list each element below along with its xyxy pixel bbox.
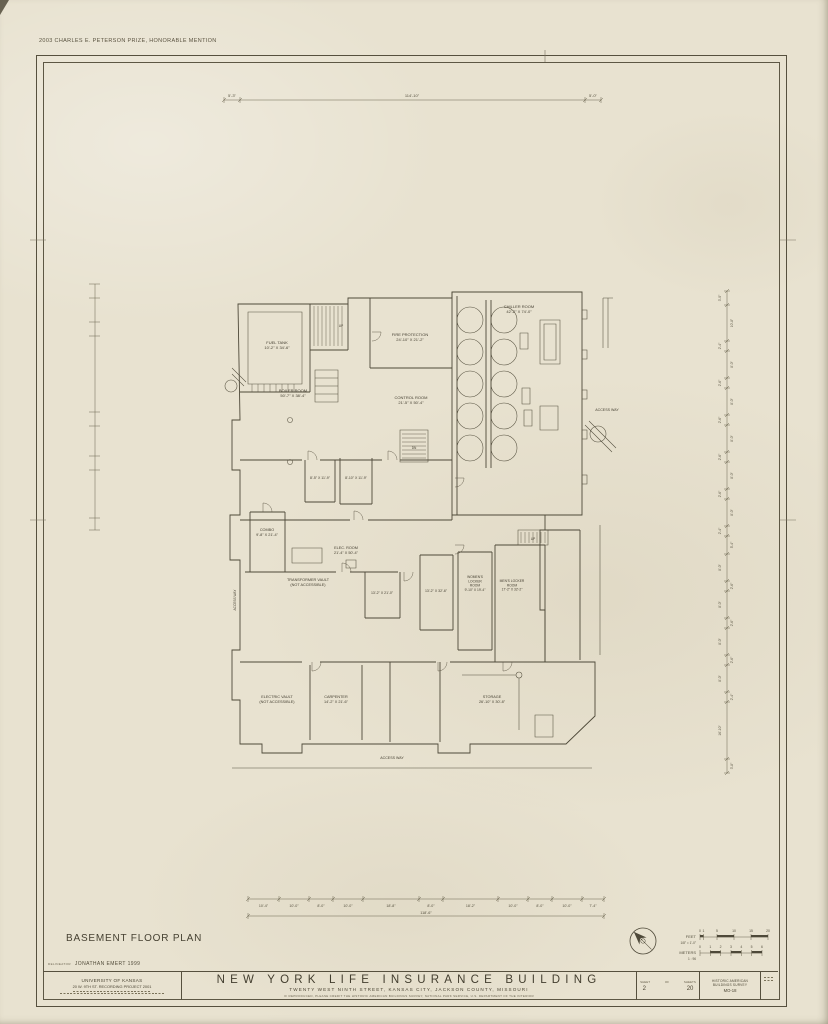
- equipment-outlines: [248, 312, 560, 737]
- room-label: STORAGE: [483, 695, 502, 699]
- dimension-label: 10'-0": [343, 904, 353, 908]
- room-label: ACCESS WAY: [233, 589, 237, 611]
- dimension-label: 18'-8": [386, 904, 396, 908]
- room-label: 17'-2" X 32'-2": [502, 588, 524, 592]
- scale-meters-label: METERS: [679, 950, 696, 955]
- room-label: 42'-2" X 74'-0": [506, 309, 532, 314]
- dimension-label: 7'-4": [589, 904, 597, 908]
- building-address: TWENTY WEST NINTH STREET, KANSAS CITY, J…: [289, 987, 528, 992]
- dimension-label: 114'-10": [405, 93, 420, 98]
- survey-number: MO-18: [724, 988, 737, 993]
- scale-meters-note: 1 : 96: [688, 957, 696, 961]
- stamp-cell: [761, 972, 777, 1000]
- room-label: 13'-2" X 32'-6": [425, 589, 448, 593]
- dimension-label: 8'-0": [730, 471, 734, 478]
- sheet-total: 20: [687, 986, 694, 992]
- dimension-label: 8'-0": [718, 600, 722, 607]
- title-block: UNIVERSITY OF KANSAS 20 W. 9TH ST. RECOR…: [43, 971, 778, 1000]
- dimension-label: 16'-10": [718, 725, 722, 736]
- dimension-label: 3'-8": [730, 762, 734, 769]
- chiller-tank: [491, 307, 517, 333]
- dimension-label: 8'-0": [730, 508, 734, 515]
- scale-tick-label: 5: [751, 945, 753, 949]
- pilaster: [582, 350, 587, 359]
- agency-name: UNIVERSITY OF KANSAS: [81, 978, 142, 983]
- stamp-fine-print: [764, 980, 774, 981]
- survey-line2: BUILDINGS SURVEY: [713, 983, 747, 987]
- dimension-label: 2'-6": [730, 582, 734, 589]
- pilaster: [582, 390, 587, 399]
- scale-feet-note: 1/8" = 1'-0": [680, 941, 696, 945]
- room-label: 13'-2" X 21'-0": [371, 591, 394, 595]
- chiller-tank: [457, 339, 483, 365]
- dimension-label: 118'-6": [420, 911, 432, 915]
- pilaster: [582, 310, 587, 319]
- dimension-label: 10'-4": [259, 904, 269, 908]
- room-label: DN: [412, 446, 417, 450]
- room-label: 21'-5" X 50'-4": [398, 400, 424, 405]
- delineator-name: JONATHAN EMERT 1999: [75, 961, 140, 967]
- dimension-line: [246, 896, 606, 902]
- dimension-label: 2'-4": [718, 342, 722, 349]
- dimension-label: 8'-0": [427, 904, 435, 908]
- room-label: 9'-8" X 21'-4": [256, 533, 279, 537]
- delineator-row: DELINEATORJONATHAN EMERT 1999: [48, 961, 140, 967]
- room-label: COMBO: [260, 528, 274, 532]
- dimension-label: 10'-8": [730, 318, 734, 327]
- room-label: 26'-10" X 30'-8": [479, 700, 506, 704]
- of-label: OF: [665, 980, 669, 984]
- scale-bar-segment: [751, 935, 768, 937]
- dimension-label: 10'-0": [508, 904, 518, 908]
- interior-walls: [240, 292, 582, 742]
- agency-cell: UNIVERSITY OF KANSAS 20 W. 9TH ST. RECOR…: [43, 972, 182, 1000]
- dimension-label: 10'-0": [562, 904, 572, 908]
- room-label: (NOT ACCESSIBLE): [290, 583, 326, 587]
- door-swings: [263, 332, 512, 671]
- dimension-label: 8'-0": [718, 674, 722, 681]
- left-dimension-ticks: [89, 284, 100, 530]
- building-name: NEW YORK LIFE INSURANCE BUILDING: [217, 974, 602, 986]
- dimension-label: 8'-0": [730, 360, 734, 367]
- dimension-label: 2'-6": [730, 656, 734, 663]
- chiller-tank: [491, 339, 517, 365]
- room-label: (NOT ACCESSIBLE): [259, 700, 295, 704]
- room-label: 21'-4" X 50'-4": [334, 551, 359, 555]
- dimension-label: 5'-0": [589, 93, 598, 98]
- room-label: 9'-10" X 19'-4": [465, 588, 487, 592]
- building-title-cell: NEW YORK LIFE INSURANCE BUILDING TWENTY …: [182, 972, 637, 1000]
- scale-tick-label: 4: [740, 945, 742, 949]
- dimension-label: 8'-0": [718, 637, 722, 644]
- chiller-tank: [457, 403, 483, 429]
- dimension-label: 5'-3": [228, 93, 237, 98]
- room-label: 14'-2" X 21'-6": [324, 700, 349, 704]
- agency-project: 20 W. 9TH ST. RECORDING PROJECT 2001: [73, 984, 152, 989]
- scale-tick-label: 20: [766, 929, 770, 933]
- room-label: TRANSFORMER VAULT: [287, 578, 330, 582]
- dimension-label: 2'-6": [718, 490, 722, 497]
- scale-tick-label: 1: [703, 929, 705, 933]
- sheet-label: SHEET: [640, 980, 650, 984]
- scale-tick-label: 0: [699, 929, 701, 933]
- chiller-tank: [457, 307, 483, 333]
- scale-tick-label: 2: [720, 945, 722, 949]
- room-label: CARPENTER: [324, 695, 348, 699]
- drawing-title: BASEMENT FLOOR PLAN: [66, 933, 202, 944]
- scale-tick-label: 0: [699, 945, 701, 949]
- pipe-junction: [516, 672, 522, 678]
- dimension-label: 8'-0": [718, 563, 722, 570]
- scale-tick-label: 1: [709, 945, 711, 949]
- room-label: ELEC. ROOM: [334, 546, 358, 550]
- dimension-label: 3'-0": [718, 294, 722, 301]
- agency-fine-print: [60, 993, 164, 994]
- dimension-label: 2'-6": [718, 453, 722, 460]
- chiller-tank: [491, 371, 517, 397]
- room-label: 8'-5" X 11'-9": [310, 476, 331, 480]
- dimension-label: 8'-0": [730, 434, 734, 441]
- room-label: 50'-7" X 38'-4": [280, 393, 306, 398]
- floor-plan-drawing: FUEL TANK10'-2" X 34'-6"FIRE PROTECTION2…: [0, 0, 828, 1024]
- delineator-label: DELINEATOR: [48, 962, 71, 966]
- survey-cell: HISTORIC AMERICAN BUILDINGS SURVEY MO-18: [700, 972, 761, 1000]
- scale-feet-label: FEET: [686, 934, 697, 939]
- room-label: ACCESS WAY: [380, 756, 404, 760]
- room-label: UP: [339, 324, 343, 328]
- dimension-label: 2'-4": [730, 693, 734, 700]
- chiller-tank: [491, 435, 517, 461]
- scale-tick-label: 5: [716, 929, 718, 933]
- manhole: [590, 426, 606, 442]
- dimension-label: 2'-6": [718, 416, 722, 423]
- room-label: ACCESS WAY: [595, 408, 619, 412]
- chiller-tank: [457, 371, 483, 397]
- scale-bar-segment: [717, 935, 734, 937]
- north-arrow-icon: [625, 923, 662, 960]
- dimension-label: 5'-4": [730, 541, 734, 548]
- dimension-label: 18'-2": [466, 904, 476, 908]
- room-label: 24'-10" X 21'-2": [396, 337, 424, 342]
- scale-bar-segment: [700, 935, 704, 937]
- dimension-label: 2'-4": [718, 527, 722, 534]
- pilaster: [582, 430, 587, 439]
- scale-tick-label: 10: [732, 929, 736, 933]
- scale-bar-segment: [731, 951, 741, 953]
- ash-hopper: [225, 380, 237, 392]
- dimension-label: 8'-0": [730, 397, 734, 404]
- pilaster: [582, 475, 587, 484]
- plan-geometry: [30, 50, 796, 768]
- scale-tick-label: 15: [749, 929, 753, 933]
- stamp-fine-print: [764, 977, 774, 978]
- dimension-label: 8'-0": [317, 904, 325, 908]
- room-label: ELECTRIC VAULT: [261, 695, 293, 699]
- scale-tick-label: 6: [761, 945, 763, 949]
- sheets-label: SHEETS: [684, 980, 696, 984]
- room-label: 10'-2" X 34'-6": [264, 345, 290, 350]
- credit-line: IF REPRODUCED, PLEASE CREDIT THE HISTORI…: [284, 994, 534, 998]
- room-label: 8'-10" X 11'-9": [345, 476, 368, 480]
- chiller-tank: [457, 435, 483, 461]
- scale-tick-label: 3: [730, 945, 732, 949]
- agency-fine-print: [73, 991, 151, 992]
- dimension-label: 2'-6": [718, 379, 722, 386]
- sheet-number-cell: SHEET OF SHEETS 2 20: [637, 972, 700, 1000]
- scale-bar-segment: [752, 951, 762, 953]
- scale-bar-segment: [710, 951, 720, 953]
- floor-drain: [288, 418, 293, 423]
- dimension-label: 8'-0": [536, 904, 544, 908]
- sheet-number: 2: [643, 986, 646, 992]
- dimension-label: 2'-6": [730, 619, 734, 626]
- dimension-label: 10'-0": [289, 904, 299, 908]
- chiller-tank: [491, 403, 517, 429]
- drawing-sheet: 2003 CHARLES E. PETERSON PRIZE, HONORABL…: [0, 0, 828, 1024]
